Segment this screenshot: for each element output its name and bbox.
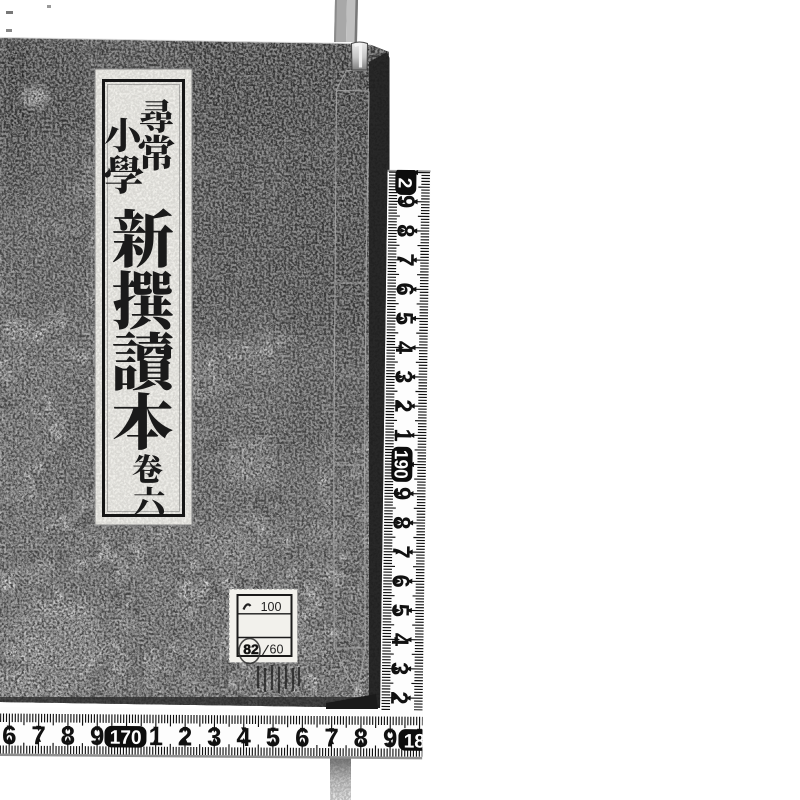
svg-text:1: 1	[389, 428, 416, 442]
svg-text:5: 5	[266, 722, 281, 752]
svg-text:5: 5	[390, 311, 417, 325]
svg-text:8: 8	[388, 516, 415, 530]
svg-text:82: 82	[243, 641, 259, 657]
svg-text:6: 6	[387, 574, 414, 588]
svg-text:7: 7	[391, 253, 418, 267]
svg-text:6: 6	[295, 722, 310, 752]
svg-text:4: 4	[390, 341, 417, 355]
svg-text:9: 9	[388, 487, 415, 501]
svg-text:8: 8	[353, 723, 368, 753]
svg-text:3: 3	[207, 722, 222, 752]
svg-text:4: 4	[386, 633, 413, 647]
svg-text:9: 9	[90, 721, 105, 751]
svg-text:6: 6	[2, 720, 17, 750]
svg-text:3: 3	[390, 370, 417, 384]
svg-text:170: 170	[110, 727, 142, 749]
svg-text:2: 2	[394, 177, 415, 188]
svg-text:8: 8	[61, 720, 76, 750]
svg-text:2: 2	[389, 399, 416, 413]
svg-text:5: 5	[386, 603, 413, 617]
svg-text:9: 9	[392, 195, 419, 209]
svg-text:2: 2	[178, 721, 193, 751]
svg-text:100: 100	[261, 600, 282, 614]
svg-text:7: 7	[31, 720, 46, 750]
svg-text:3: 3	[385, 662, 412, 676]
svg-text:6: 6	[391, 282, 418, 296]
svg-text:60: 60	[270, 643, 284, 657]
svg-text:7: 7	[324, 723, 339, 753]
svg-text:8: 8	[392, 224, 419, 238]
svg-text:2: 2	[385, 691, 412, 705]
svg-text:9: 9	[383, 723, 398, 753]
svg-text:7: 7	[387, 545, 414, 559]
svg-text:1: 1	[148, 721, 163, 751]
svg-text:4: 4	[236, 722, 251, 752]
svg-text:190: 190	[390, 450, 411, 479]
